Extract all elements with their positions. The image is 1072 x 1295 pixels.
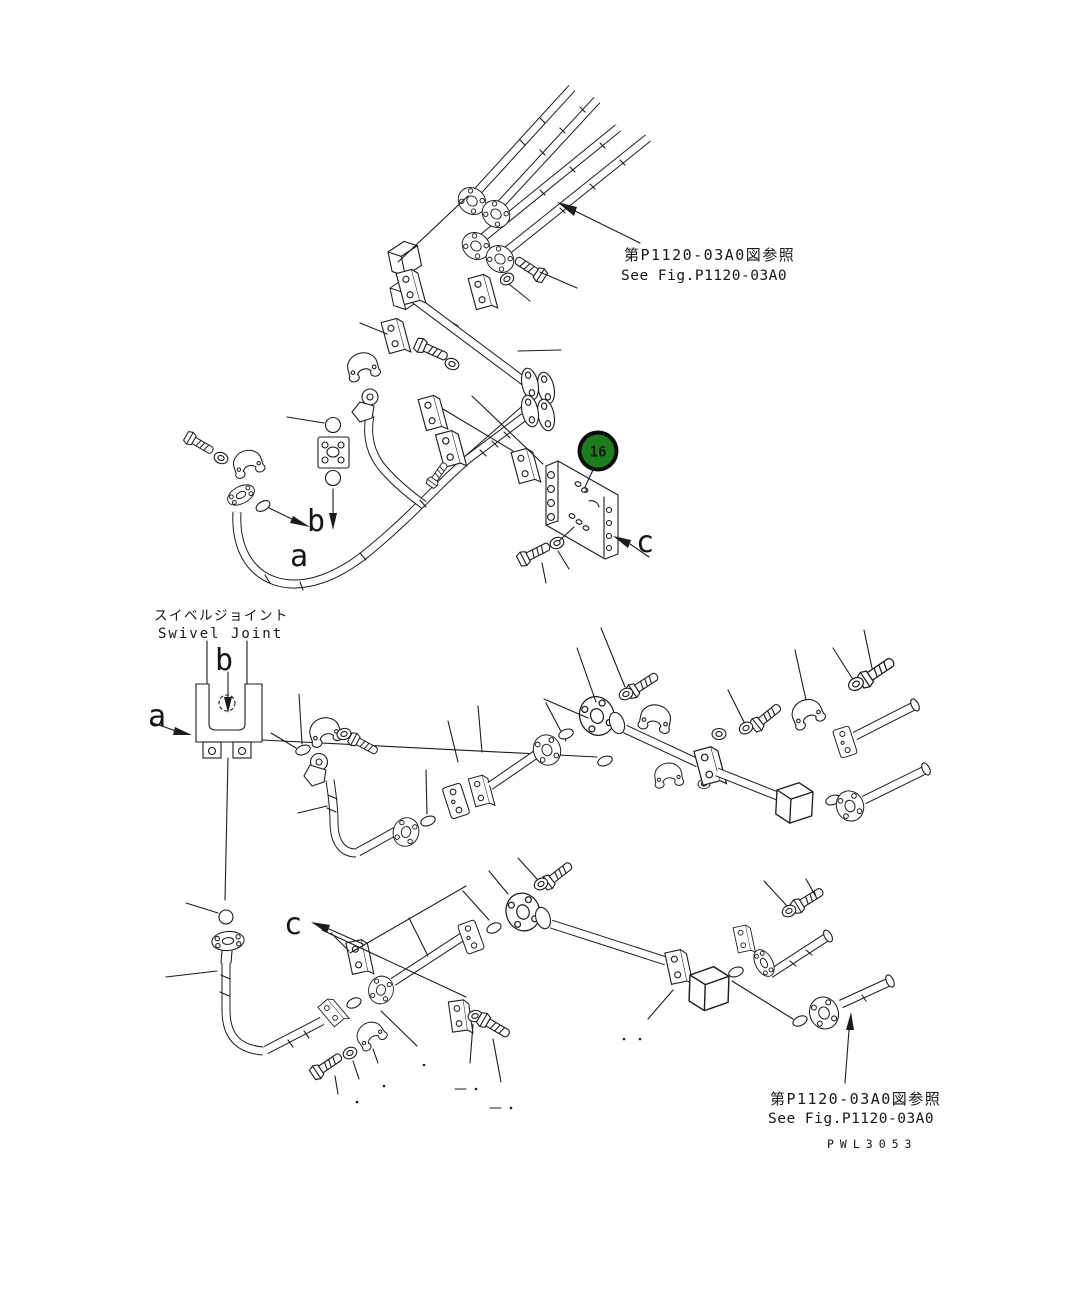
- arrow-icon: [311, 922, 330, 933]
- view-label-a-swivel: a: [148, 699, 166, 734]
- mounting-plate-assembly: 16 c: [516, 431, 654, 584]
- mid-right-pipe-assembly: [544, 628, 932, 825]
- drawing-code: PWL3053: [827, 1137, 917, 1151]
- arrow-icon: [846, 1012, 854, 1030]
- tube-bundle-assembly: [387, 88, 648, 326]
- reference-note-bottom-en: See Fig.P1120-03A0: [768, 1111, 934, 1127]
- view-label-a-top: a: [290, 539, 308, 574]
- arrow-icon: [173, 727, 192, 735]
- view-label-b-top: b: [307, 504, 325, 539]
- stray-marks: [356, 1038, 642, 1110]
- view-labels-top: b a: [269, 489, 337, 574]
- view-label-c-plate: c: [636, 525, 654, 560]
- callout-number: 16: [590, 445, 607, 461]
- swivel-joint-label-jp: スイベルジョイント: [154, 608, 289, 624]
- reference-note-top-jp: 第P1120-03A0図参照: [624, 246, 795, 264]
- parts-diagram-page: 第P1120-03A0図参照 See Fig.P1120-03A0: [0, 0, 1072, 1295]
- arrow-icon: [329, 513, 337, 530]
- reference-note-top-en: See Fig.P1120-03A0: [621, 268, 787, 284]
- swivel-joint-label-en: Swivel Joint: [158, 626, 283, 642]
- lower-pipe-assembly: c: [284, 858, 896, 1082]
- reference-note-bottom: 第P1120-03A0図参照 See Fig.P1120-03A0 PWL305…: [768, 1012, 941, 1151]
- mid-hose-assembly: [183, 268, 561, 590]
- part-callout-16[interactable]: 16: [578, 431, 619, 472]
- view-label-c-lower: c: [284, 907, 302, 942]
- piping-diagram: 第P1120-03A0図参照 See Fig.P1120-03A0: [0, 0, 1072, 1295]
- reference-note-top: 第P1120-03A0図参照 See Fig.P1120-03A0: [557, 202, 795, 284]
- swivel-joint: スイベルジョイント Swivel Joint b a: [148, 608, 726, 900]
- reference-note-bottom-jp: 第P1120-03A0図参照: [770, 1090, 941, 1108]
- mid-left-pipe-chain: [271, 694, 566, 853]
- view-label-b-swivel: b: [215, 643, 233, 678]
